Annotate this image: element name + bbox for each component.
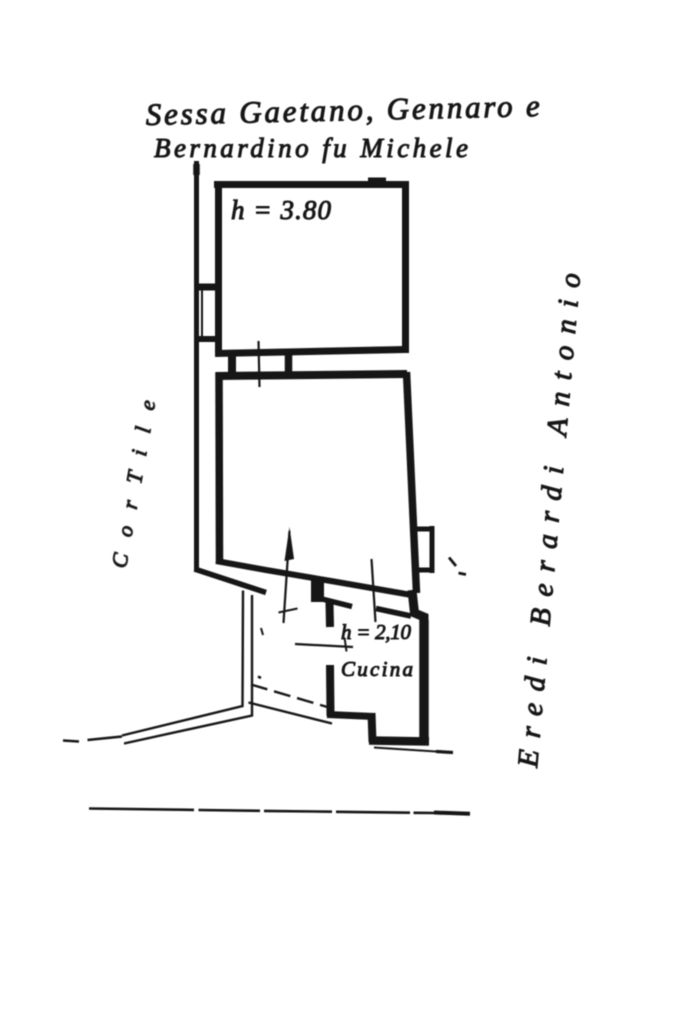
svg-text:h = 3.80: h = 3.80 — [231, 195, 332, 225]
svg-text:Cucina: Cucina — [341, 657, 413, 681]
svg-text:Eredi Berardi Antonio: Eredi Berardi Antonio — [512, 272, 587, 770]
svg-text:Sessa Gaetano, Gennaro e: Sessa Gaetano, Gennaro e — [145, 88, 540, 132]
svg-text:Bernardino fu Michele: Bernardino fu Michele — [154, 133, 468, 163]
svg-text:CorTile: CorTile — [106, 398, 160, 570]
svg-text:h = 2,10: h = 2,10 — [341, 620, 412, 644]
